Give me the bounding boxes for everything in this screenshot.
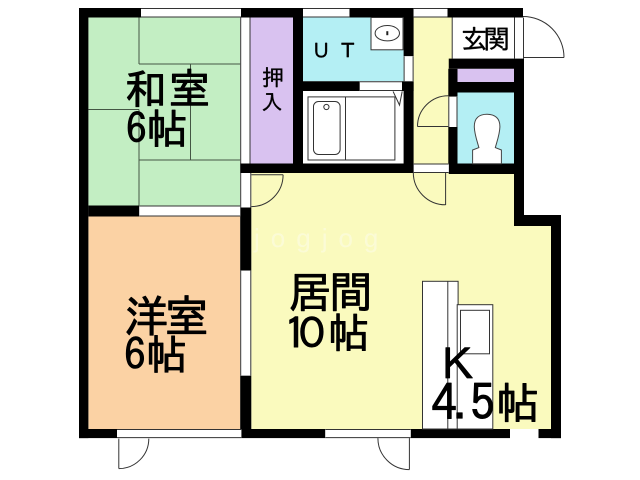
svg-text:jogjog: jogjog: [253, 223, 389, 253]
